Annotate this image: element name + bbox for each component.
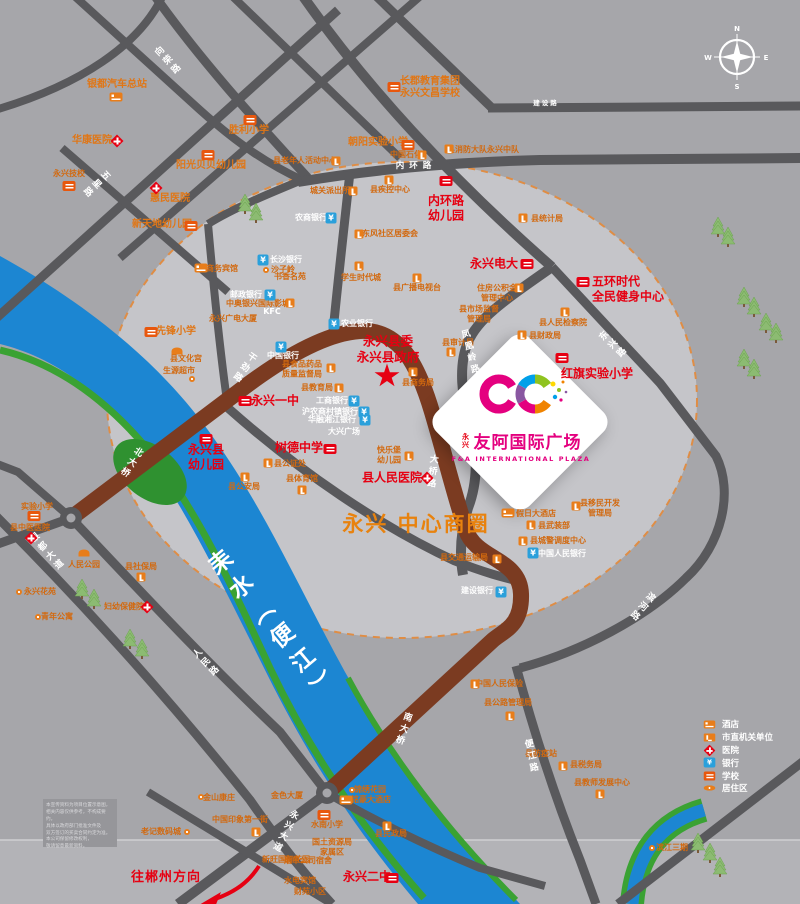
plaza-name: 友阿国际广场 xyxy=(474,428,582,453)
legend-label: 居住区 xyxy=(722,782,748,794)
hospital-icon xyxy=(704,744,716,756)
legend-item: ¥银行 xyxy=(703,756,773,769)
hotel-icon xyxy=(704,720,716,728)
legend-label: 医院 xyxy=(722,744,739,756)
bank-icon: ¥ xyxy=(704,758,716,768)
disclaimer-line: 相关内容仅供参考，不构成要约。 xyxy=(46,810,114,824)
legend-label: 酒店 xyxy=(722,718,739,730)
compass-n: N xyxy=(734,25,740,33)
legend-item: 居住区 xyxy=(703,782,773,795)
compass-s: S xyxy=(734,83,739,91)
compass-w: W xyxy=(704,54,712,62)
legend-label: 银行 xyxy=(722,757,739,769)
map-canvas: N E S W 永兴 友阿国际广场 F&A INTERNATIONAL PLAZ… xyxy=(0,0,800,904)
basemap-graphics: N E S W xyxy=(0,0,800,904)
plaza-prefix: 永兴 xyxy=(461,433,471,449)
disclaimer-line: 本宣传资料为项目位置示意图， xyxy=(46,803,114,810)
legend-item: 市直机关单位 xyxy=(703,731,773,744)
plaza-cc-logo-icon xyxy=(473,370,569,422)
legend-item: 医院 xyxy=(703,744,773,757)
government-icon xyxy=(704,733,716,741)
direction-to-chenzhou-label: 往郴州方向 xyxy=(131,866,201,885)
school-icon xyxy=(704,771,716,780)
compass-e: E xyxy=(764,54,769,62)
plaza-logo-block[interactable]: 永兴 友阿国际广场 F&A INTERNATIONAL PLAZA xyxy=(440,370,602,463)
legend-item: 酒店 xyxy=(703,718,773,731)
label-county-government: 永兴县委 永兴县政府 xyxy=(357,333,420,364)
legend-label: 市直机关单位 xyxy=(722,731,773,743)
legend-label: 学校 xyxy=(722,770,739,782)
map-legend: 酒店 市直机关单位 医院 ¥银行 学校 居住区 xyxy=(703,718,773,795)
trade-area-circle xyxy=(107,162,697,638)
disclaimer-line: 具体以政府部门批准文件及 xyxy=(46,824,114,831)
legend-item: 学校 xyxy=(703,769,773,782)
disclaimer-line: 敬请留意最新资料。 xyxy=(46,844,114,851)
central-business-district-label: 永兴 中心商圈 xyxy=(342,511,489,537)
plaza-name-en: F&A INTERNATIONAL PLAZA xyxy=(440,455,602,463)
residence-icon xyxy=(704,786,716,791)
direction-arrow-icon xyxy=(195,862,267,904)
disclaimer-box: 本宣传资料为项目位置示意图， 相关内容仅供参考，不构成要约。 具体以政府部门批准… xyxy=(43,799,117,847)
